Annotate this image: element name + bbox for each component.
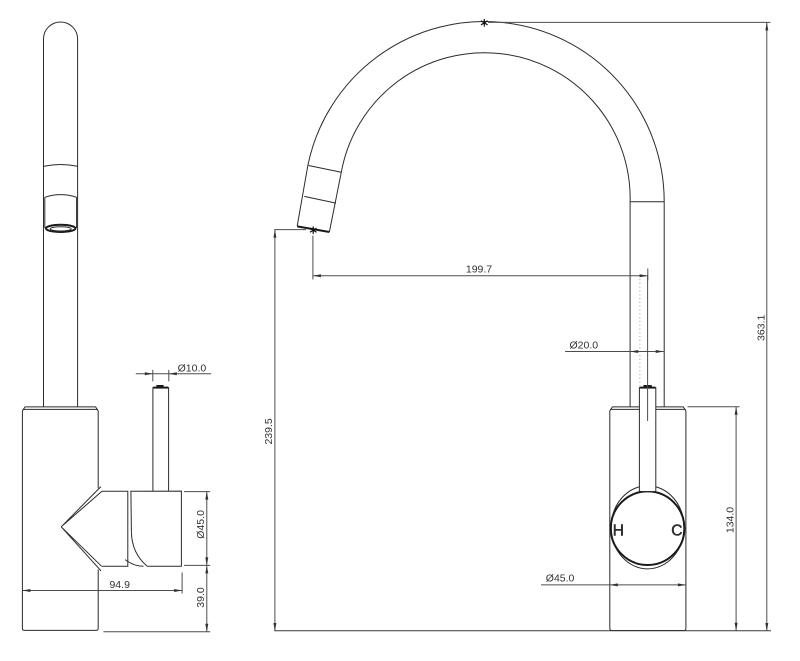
- svg-text:239.5: 239.5: [263, 418, 275, 444]
- svg-text:39.0: 39.0: [195, 587, 207, 608]
- svg-text:363.1: 363.1: [756, 315, 768, 341]
- svg-text:H: H: [613, 523, 624, 540]
- svg-text:199.7: 199.7: [466, 263, 492, 275]
- svg-text:Ø45.0: Ø45.0: [195, 510, 207, 539]
- svg-text:94.9: 94.9: [109, 579, 130, 591]
- svg-text:134.0: 134.0: [725, 507, 737, 533]
- svg-text:C: C: [671, 523, 682, 540]
- svg-text:Ø45.0: Ø45.0: [546, 572, 575, 584]
- svg-text:Ø10.0: Ø10.0: [178, 362, 207, 374]
- svg-text:Ø20.0: Ø20.0: [570, 340, 599, 352]
